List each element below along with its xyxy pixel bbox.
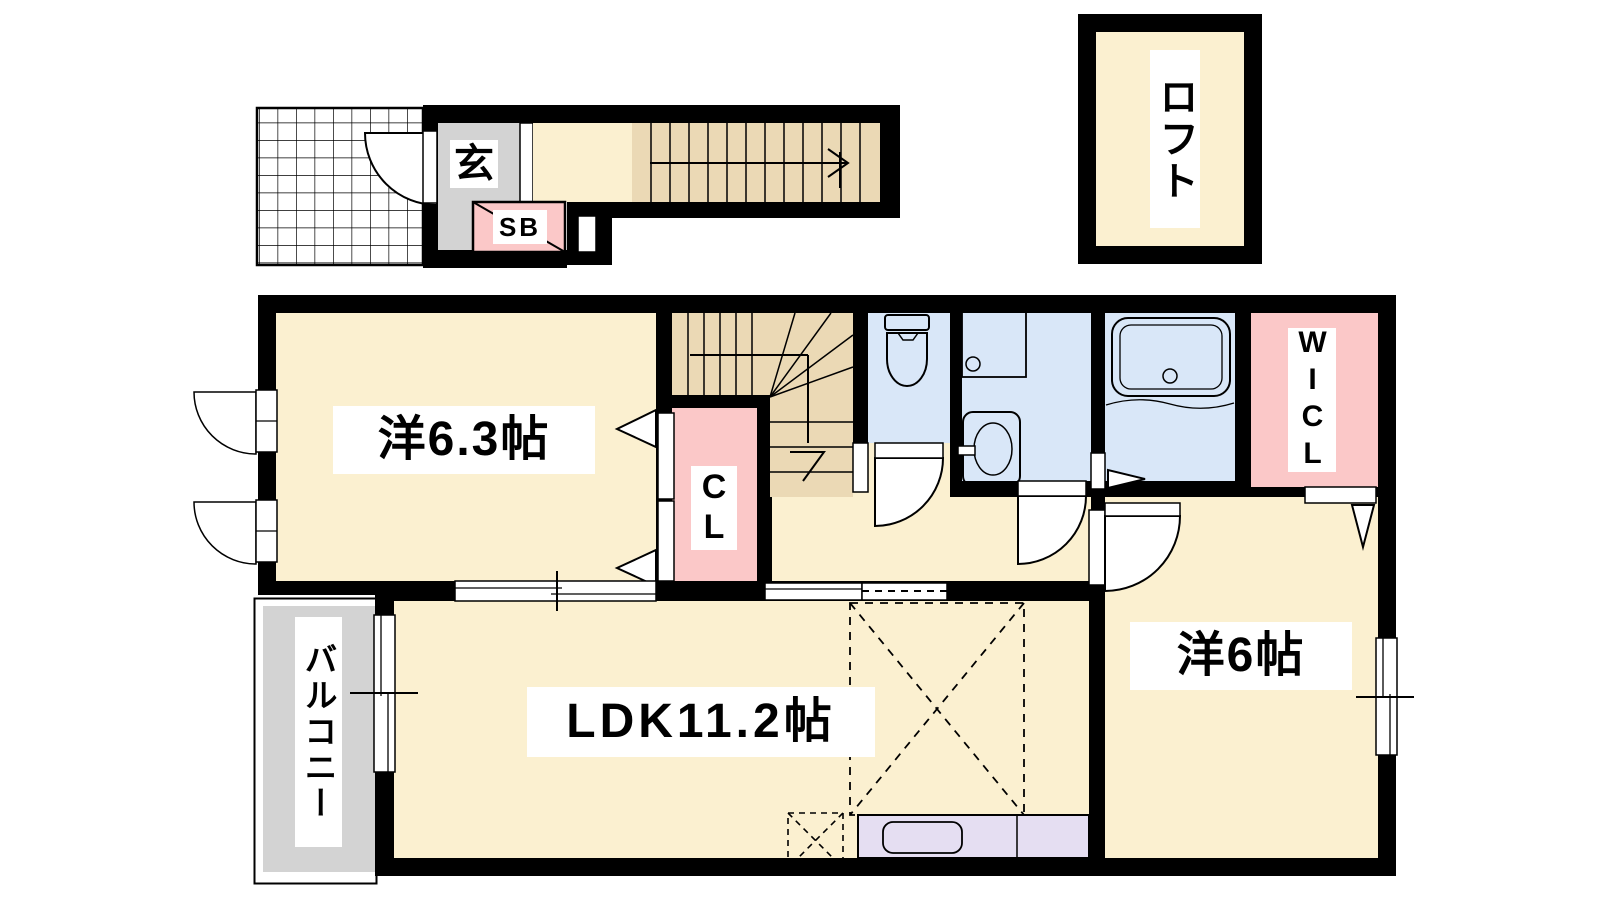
- entrance-block: [257, 105, 900, 268]
- entrance-hall-floor: [533, 123, 632, 202]
- entrance-door-leaf: [423, 131, 437, 203]
- western-room-1-label: 洋6.3帖: [333, 406, 595, 474]
- kitchen-counter: [858, 815, 1089, 858]
- loft-label: ロフト: [1150, 50, 1200, 228]
- balcony-label: バルコニー: [295, 617, 342, 847]
- closet-label: CL: [691, 466, 737, 550]
- western-room-2-label: 洋6帖: [1130, 622, 1352, 690]
- staircase-1f: [632, 123, 880, 202]
- floor-plan-canvas: ロフト 玄 SB 洋6.3帖 CL WICL バルコニー LDK11.2帖 洋6…: [0, 0, 1600, 900]
- floor-plan-drawing: [0, 0, 1600, 900]
- genkan-step: [520, 123, 533, 202]
- hallway-ldk-opening: [765, 583, 947, 600]
- main-unit: [194, 295, 1414, 887]
- shoe-box-label: SB: [493, 210, 547, 244]
- entrance-wall-window: [578, 216, 596, 252]
- ldk-label: LDK11.2帖: [527, 687, 875, 757]
- entrance-label: 玄: [450, 140, 498, 188]
- walk-in-closet-label: WICL: [1288, 328, 1336, 472]
